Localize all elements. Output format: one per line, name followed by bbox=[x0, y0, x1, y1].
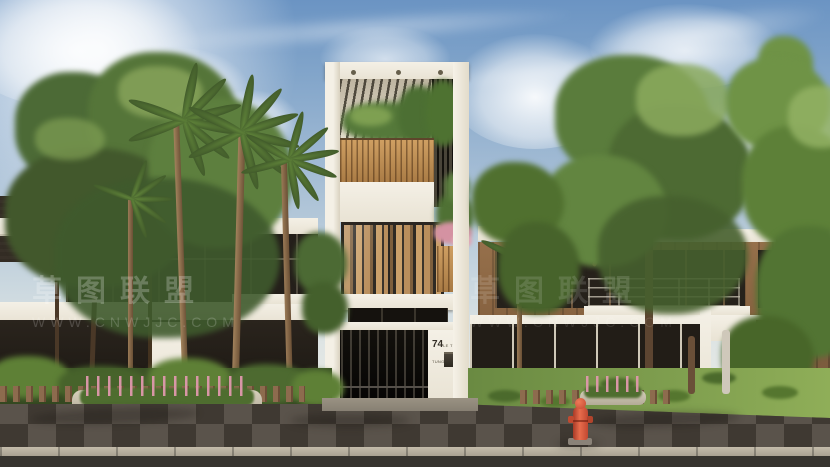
flower-spikes bbox=[86, 376, 250, 396]
right-tree-canopy bbox=[498, 222, 580, 314]
house-mid-beam bbox=[340, 322, 453, 330]
house-downlight bbox=[396, 70, 401, 75]
architectural-rendering: 74LE TRONG TUNG bbox=[0, 0, 830, 467]
grass-tuft bbox=[702, 372, 736, 384]
house-window-mullion bbox=[388, 222, 390, 294]
house-gate-rail bbox=[332, 386, 428, 388]
tree-shadow bbox=[290, 414, 410, 427]
house-transom bbox=[348, 308, 448, 323]
tree-trunk bbox=[688, 336, 695, 394]
pine-canopy-highlight bbox=[35, 118, 105, 160]
grass-tuft bbox=[762, 386, 798, 399]
flower-spikes bbox=[586, 376, 640, 392]
house-garage-gate bbox=[332, 330, 428, 402]
house-window-curtains bbox=[341, 222, 444, 300]
small-tree-canopy bbox=[302, 282, 348, 334]
tree-trunk-pale bbox=[722, 330, 730, 394]
big-tree-canopy bbox=[598, 196, 748, 314]
hydrant-body bbox=[573, 406, 588, 440]
house-number-value: 74 bbox=[432, 339, 443, 350]
house-right-pier bbox=[453, 62, 469, 410]
house-downlight bbox=[438, 70, 443, 75]
grass-tuft bbox=[488, 390, 522, 402]
house-downlight bbox=[351, 70, 356, 75]
hydrant-collar bbox=[573, 420, 588, 422]
house-white-band bbox=[340, 182, 434, 222]
house-wood-planter-band bbox=[340, 138, 434, 184]
house-terrace-plants bbox=[350, 106, 392, 126]
driveway-apron bbox=[322, 398, 478, 411]
road bbox=[0, 456, 830, 467]
big-tree-canopy-highlight bbox=[636, 64, 731, 136]
hydrant-cap bbox=[575, 398, 586, 409]
pine-canopy bbox=[55, 178, 280, 338]
